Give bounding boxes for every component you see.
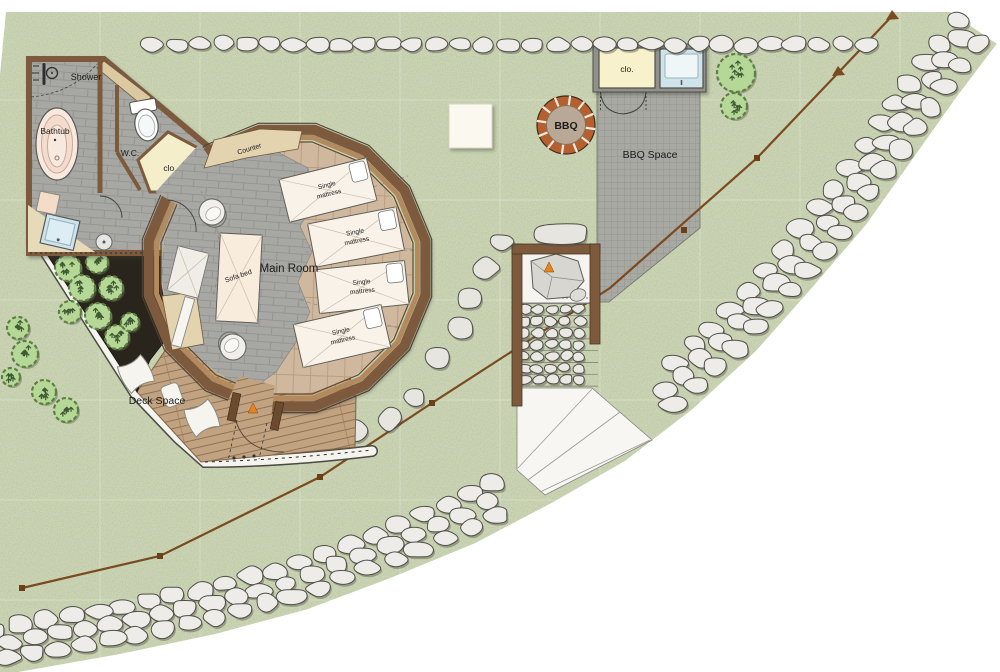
stone xyxy=(426,37,448,51)
stone xyxy=(544,364,556,373)
stone xyxy=(534,224,587,245)
outdoor-sink-icon xyxy=(660,49,703,88)
stone xyxy=(560,305,571,313)
stone xyxy=(844,204,868,221)
label-deck-space: Deck Space xyxy=(129,395,186,407)
stone xyxy=(573,352,585,361)
stone xyxy=(545,352,559,361)
stone xyxy=(47,625,72,640)
bush-icon xyxy=(32,380,56,404)
step-light-icon xyxy=(232,456,235,459)
site-plan-canvas: clo. BBQ BBQ Space xyxy=(0,0,1000,672)
stone xyxy=(573,364,584,373)
stone xyxy=(948,12,969,28)
stone xyxy=(276,590,307,605)
stool-icon xyxy=(36,191,60,215)
sofa-bed: Sofa bed xyxy=(216,233,263,323)
bush-icon xyxy=(717,54,755,92)
bathtub-icon xyxy=(36,108,78,180)
stone xyxy=(300,566,325,583)
stone xyxy=(330,570,355,584)
stone xyxy=(559,328,572,338)
step-light-icon xyxy=(242,455,245,458)
stair-wall-right xyxy=(590,244,600,344)
stone xyxy=(889,139,912,160)
stone xyxy=(929,35,950,53)
stone xyxy=(560,375,572,385)
pillow-icon xyxy=(386,263,404,284)
label-bbq-space: BBQ Space xyxy=(623,149,678,161)
stair-wall-left xyxy=(512,244,522,406)
stone xyxy=(743,319,768,334)
stone xyxy=(179,616,202,630)
label-shower: Shower xyxy=(71,72,102,82)
label-bbq: BBQ xyxy=(554,120,577,132)
stone xyxy=(559,340,571,349)
white-pad xyxy=(449,104,492,148)
stone xyxy=(427,516,449,532)
stone xyxy=(573,376,584,385)
stone xyxy=(531,316,543,325)
site-plan-page: clo. BBQ BBQ Space xyxy=(0,0,1000,672)
stone xyxy=(574,328,585,338)
brick-joint xyxy=(562,144,563,154)
round-stool-icon xyxy=(96,234,112,250)
stone xyxy=(458,288,481,308)
pillow-icon xyxy=(378,209,397,231)
label-wc: W.C. xyxy=(121,148,139,158)
label-main-room: Main Room xyxy=(260,263,319,275)
stone xyxy=(403,542,433,557)
step-light-icon xyxy=(252,454,255,457)
stone xyxy=(448,317,473,339)
brick-joint xyxy=(585,128,595,129)
stone xyxy=(709,35,733,52)
stone xyxy=(546,374,559,384)
sink-basin xyxy=(665,54,698,78)
stone xyxy=(237,37,258,51)
stone xyxy=(23,629,48,645)
bathtub-label-dot xyxy=(54,139,56,141)
brick-joint xyxy=(537,121,547,122)
stone xyxy=(617,38,637,51)
bed-single-mattress: Single mattress xyxy=(315,260,409,313)
stone xyxy=(480,474,504,491)
stone xyxy=(546,306,558,314)
label-bbq-closet: clo. xyxy=(620,64,633,74)
stone xyxy=(521,38,542,52)
brick-joint xyxy=(569,96,570,106)
stone xyxy=(377,37,402,50)
stone xyxy=(545,340,558,349)
stone xyxy=(497,39,520,52)
stone xyxy=(559,316,570,325)
label-bathtub: Bathtub xyxy=(40,126,70,136)
